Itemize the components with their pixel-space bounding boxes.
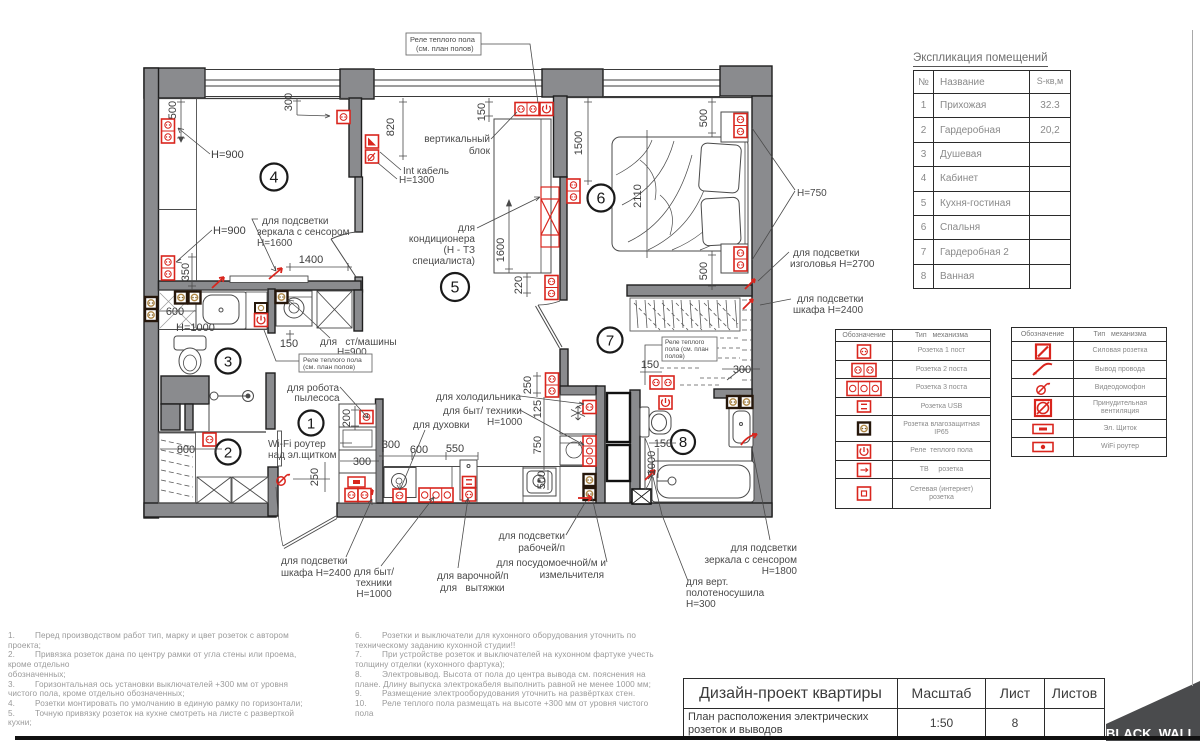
svg-text:специалиста): специалиста): [412, 256, 475, 267]
svg-text:500: 500: [167, 101, 179, 119]
svg-text:изголовья H=2700: изголовья H=2700: [790, 259, 875, 270]
svg-text:(H - ТЗ: (H - ТЗ: [444, 245, 475, 256]
svg-text:2: 2: [224, 445, 232, 462]
svg-text:техники: техники: [356, 578, 392, 589]
svg-text:для подсветки: для подсветки: [499, 531, 565, 542]
svg-text:H=300: H=300: [686, 599, 716, 610]
svg-text:500: 500: [698, 109, 710, 127]
svg-text:200: 200: [341, 409, 353, 427]
svg-text:H=1000: H=1000: [356, 589, 392, 600]
svg-text:для духовки: для духовки: [413, 420, 469, 431]
svg-text:H=1800: H=1800: [762, 566, 798, 577]
svg-text:вертикальный: вертикальный: [424, 134, 490, 145]
svg-text:750: 750: [532, 436, 544, 454]
svg-text:600: 600: [166, 306, 184, 318]
svg-text:зеркала с сенсором: зеркала с сенсором: [257, 227, 350, 238]
svg-text:8: 8: [679, 434, 687, 451]
svg-text:1500: 1500: [573, 131, 585, 155]
svg-text:для подсветки: для подсветки: [281, 556, 347, 567]
svg-text:полов): полов): [665, 353, 685, 360]
svg-text:H=1000: H=1000: [176, 322, 215, 334]
svg-text:600: 600: [410, 444, 428, 456]
svg-text:для подсветки: для подсветки: [797, 294, 863, 305]
svg-text:H=900: H=900: [213, 225, 246, 237]
svg-text:250: 250: [309, 468, 321, 486]
svg-text:220: 220: [513, 276, 525, 294]
svg-text:6: 6: [597, 191, 606, 208]
svg-text:для посудомоечной/м и: для посудомоечной/м и: [497, 558, 606, 569]
svg-text:550: 550: [446, 443, 464, 455]
svg-text:800: 800: [177, 444, 195, 456]
svg-text:блок: блок: [469, 145, 491, 157]
svg-text:300: 300: [382, 439, 400, 451]
svg-text:300: 300: [733, 364, 751, 376]
svg-text:полотеносушила: полотеносушила: [686, 588, 765, 599]
svg-text:4: 4: [270, 170, 279, 187]
svg-text:рабочей/п: рабочей/п: [518, 542, 565, 554]
svg-text:150: 150: [476, 103, 488, 121]
svg-text:300: 300: [353, 456, 371, 468]
svg-text:для подсветки: для подсветки: [731, 543, 797, 554]
svg-text:для верт.: для верт.: [686, 577, 728, 588]
svg-text:500: 500: [536, 471, 548, 489]
svg-text:для быт/ техники: для быт/ техники: [443, 405, 522, 417]
svg-text:1600: 1600: [495, 238, 507, 262]
svg-text:для: для: [458, 223, 475, 234]
svg-text:зеркала с сенсором: зеркала с сенсором: [705, 555, 798, 566]
svg-text:500: 500: [698, 262, 710, 280]
svg-text:(см. план полов): (см. план полов): [416, 44, 474, 53]
svg-text:7: 7: [606, 333, 614, 350]
svg-text:820: 820: [385, 118, 397, 136]
svg-text:250: 250: [522, 376, 534, 394]
svg-text:для вытяжки: для вытяжки: [440, 583, 505, 594]
svg-text:для холодильника: для холодильника: [436, 392, 522, 403]
svg-text:H=750: H=750: [797, 188, 827, 199]
svg-text:H=1000: H=1000: [487, 417, 523, 428]
svg-text:5: 5: [451, 280, 460, 297]
svg-text:1400: 1400: [299, 254, 323, 266]
svg-text:3: 3: [224, 354, 232, 371]
svg-text:1: 1: [307, 416, 315, 433]
svg-text:для подсветки: для подсветки: [793, 248, 859, 259]
svg-text:над эл.щитком: над эл.щитком: [268, 450, 337, 461]
svg-text:пола (см. план: пола (см. план: [665, 346, 709, 353]
svg-text:H=1600: H=1600: [257, 238, 293, 249]
svg-text:350: 350: [180, 263, 192, 281]
svg-text:шкафа H=2400: шкафа H=2400: [793, 304, 863, 316]
svg-text:150: 150: [641, 359, 659, 371]
svg-text:измельчителя: измельчителя: [540, 570, 604, 581]
svg-text:H=1300: H=1300: [399, 175, 435, 186]
svg-text:2110: 2110: [632, 184, 644, 208]
svg-text:150: 150: [654, 438, 672, 450]
svg-text:для быт/: для быт/: [354, 566, 394, 578]
svg-text:для подсветки: для подсветки: [262, 216, 328, 227]
svg-text:Реле теплого: Реле теплого: [665, 339, 705, 346]
svg-text:300: 300: [283, 93, 295, 111]
svg-text:пылесоса: пылесоса: [294, 393, 340, 404]
svg-text:150: 150: [280, 338, 298, 350]
svg-text:Реле теплого пола: Реле теплого пола: [410, 35, 476, 44]
svg-text:кондиционера: кондиционера: [409, 234, 476, 245]
svg-text:шкафа H=2400: шкафа H=2400: [281, 567, 351, 579]
svg-text:(см. план полов): (см. план полов): [303, 364, 355, 371]
svg-text:125: 125: [532, 400, 544, 418]
svg-text:1000: 1000: [646, 451, 658, 475]
svg-text:Реле теплого пола: Реле теплого пола: [303, 357, 362, 364]
svg-text:H=900: H=900: [211, 149, 244, 161]
svg-text:для варочной/п: для варочной/п: [437, 571, 509, 582]
svg-text:Wi-Fi роутер: Wi-Fi роутер: [268, 439, 326, 450]
